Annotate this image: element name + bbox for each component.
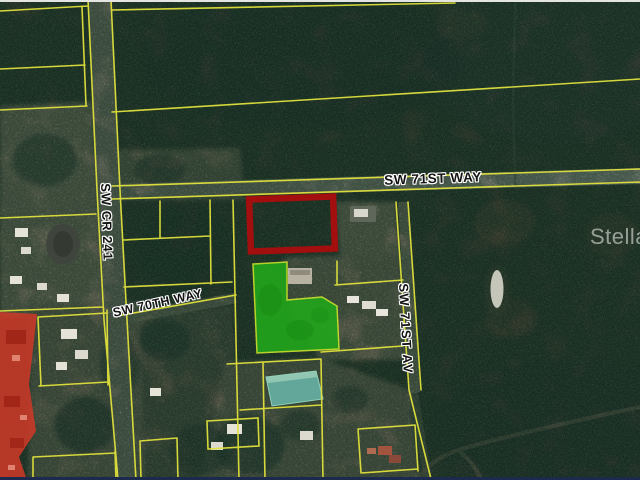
stellar-watermark: Stellar (590, 224, 640, 250)
road-label-sw-cr-241: SW CR 241 (98, 183, 116, 261)
light-clearing-oval (491, 270, 504, 308)
canopy-highlight-texture (0, 0, 640, 480)
image-top-border (0, 0, 640, 2)
aerial-imagery (0, 0, 640, 480)
aerial-parcel-map-image[interactable]: SW 71ST WAY SW CR 241 SW 70TH WAY SW 71S… (0, 0, 640, 480)
